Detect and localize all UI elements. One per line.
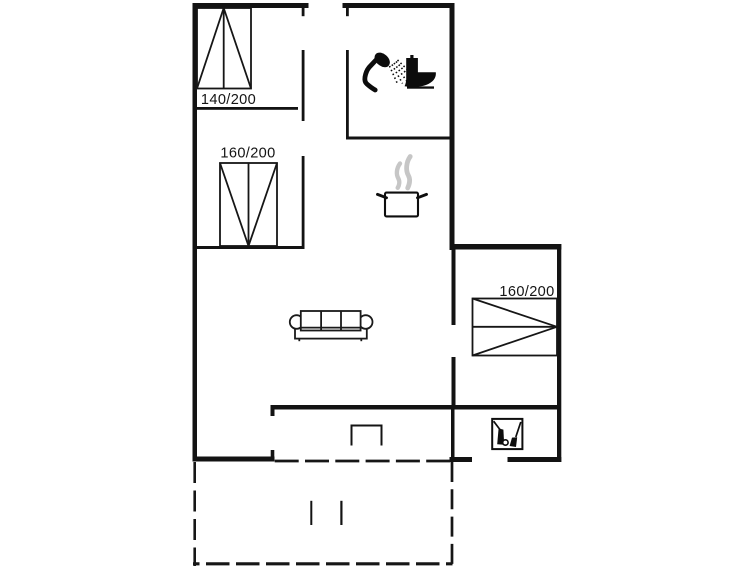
svg-text:140/200: 140/200 — [201, 92, 256, 108]
svg-text:160/200: 160/200 — [220, 146, 275, 162]
